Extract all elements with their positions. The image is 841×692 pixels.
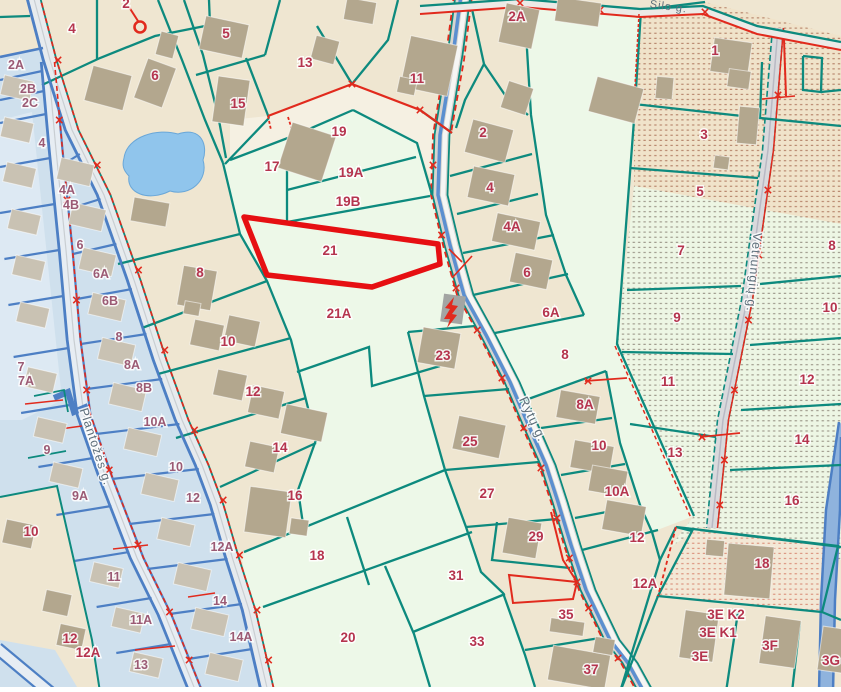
svg-text:11: 11: [107, 570, 120, 584]
svg-text:6A: 6A: [93, 267, 109, 281]
svg-text:33: 33: [469, 634, 485, 649]
svg-text:16: 16: [287, 488, 303, 503]
svg-text:2: 2: [122, 0, 130, 11]
svg-text:8A: 8A: [576, 397, 594, 412]
svg-text:2A: 2A: [8, 58, 24, 72]
svg-text:9: 9: [44, 443, 51, 457]
svg-text:9: 9: [673, 310, 681, 325]
svg-text:12A: 12A: [211, 540, 234, 554]
svg-text:4: 4: [68, 21, 76, 36]
svg-text:12: 12: [799, 372, 814, 387]
svg-text:2A: 2A: [508, 9, 526, 24]
svg-text:14: 14: [794, 432, 810, 447]
svg-text:5: 5: [696, 184, 704, 199]
svg-text:18: 18: [309, 548, 325, 563]
svg-text:2B: 2B: [20, 82, 36, 96]
svg-text:10A: 10A: [144, 415, 167, 429]
svg-text:8: 8: [561, 347, 569, 362]
svg-text:37: 37: [583, 662, 598, 677]
svg-text:7: 7: [677, 243, 685, 258]
svg-text:25: 25: [462, 434, 478, 449]
svg-text:8B: 8B: [136, 381, 152, 395]
svg-text:23: 23: [435, 348, 451, 363]
svg-text:7: 7: [18, 360, 25, 374]
svg-text:6A: 6A: [542, 305, 560, 320]
svg-text:3F: 3F: [762, 638, 778, 653]
svg-text:13: 13: [667, 445, 683, 460]
svg-text:11A: 11A: [130, 613, 152, 627]
svg-text:2: 2: [479, 125, 487, 140]
svg-text:17: 17: [264, 159, 279, 174]
svg-text:8: 8: [196, 265, 204, 280]
svg-text:2C: 2C: [22, 96, 38, 110]
svg-text:12A: 12A: [76, 645, 101, 660]
svg-text:9A: 9A: [72, 489, 88, 503]
svg-text:31: 31: [448, 568, 464, 583]
svg-text:35: 35: [558, 607, 574, 622]
svg-text:4: 4: [39, 136, 46, 150]
svg-text:3E K2: 3E K2: [707, 607, 745, 622]
svg-text:4A: 4A: [59, 183, 75, 197]
svg-text:21A: 21A: [327, 306, 352, 321]
svg-text:6: 6: [77, 238, 84, 252]
svg-text:18: 18: [754, 556, 770, 571]
svg-text:7A: 7A: [18, 374, 34, 388]
svg-text:3E: 3E: [692, 649, 709, 664]
svg-text:10: 10: [169, 460, 183, 474]
svg-text:27: 27: [479, 486, 494, 501]
svg-text:10A: 10A: [605, 484, 630, 499]
svg-text:12: 12: [629, 530, 644, 545]
svg-text:12: 12: [245, 384, 260, 399]
svg-text:12A: 12A: [633, 576, 658, 591]
svg-text:6: 6: [151, 68, 159, 83]
svg-text:13: 13: [297, 55, 313, 70]
svg-text:4A: 4A: [503, 219, 521, 234]
svg-text:10: 10: [591, 438, 606, 453]
svg-text:4: 4: [486, 180, 494, 195]
svg-text:14: 14: [213, 594, 227, 608]
svg-text:1: 1: [711, 43, 719, 58]
svg-text:19A: 19A: [339, 165, 364, 180]
svg-text:29: 29: [528, 529, 543, 544]
svg-text:10: 10: [822, 300, 837, 315]
svg-text:13: 13: [134, 658, 148, 672]
svg-text:19: 19: [331, 124, 346, 139]
svg-text:11: 11: [410, 71, 425, 86]
svg-text:8: 8: [828, 238, 836, 253]
svg-text:16: 16: [784, 493, 800, 508]
svg-text:19B: 19B: [336, 194, 361, 209]
svg-text:12: 12: [186, 491, 200, 505]
svg-text:4B: 4B: [63, 198, 79, 212]
svg-text:21: 21: [322, 243, 338, 258]
svg-text:3: 3: [700, 127, 708, 142]
svg-text:20: 20: [340, 630, 355, 645]
svg-text:6: 6: [523, 265, 531, 280]
svg-text:14: 14: [272, 440, 288, 455]
svg-text:15: 15: [230, 96, 246, 111]
svg-text:8A: 8A: [124, 358, 140, 372]
svg-text:11: 11: [661, 374, 676, 389]
svg-text:10: 10: [23, 524, 38, 539]
svg-text:8: 8: [116, 330, 123, 344]
svg-text:5: 5: [222, 26, 230, 41]
svg-text:3G: 3G: [822, 653, 840, 668]
svg-text:6B: 6B: [102, 294, 118, 308]
svg-text:14A: 14A: [230, 630, 253, 644]
svg-text:3E K1: 3E K1: [699, 625, 737, 640]
svg-text:10: 10: [220, 334, 235, 349]
svg-text:12: 12: [62, 631, 77, 646]
